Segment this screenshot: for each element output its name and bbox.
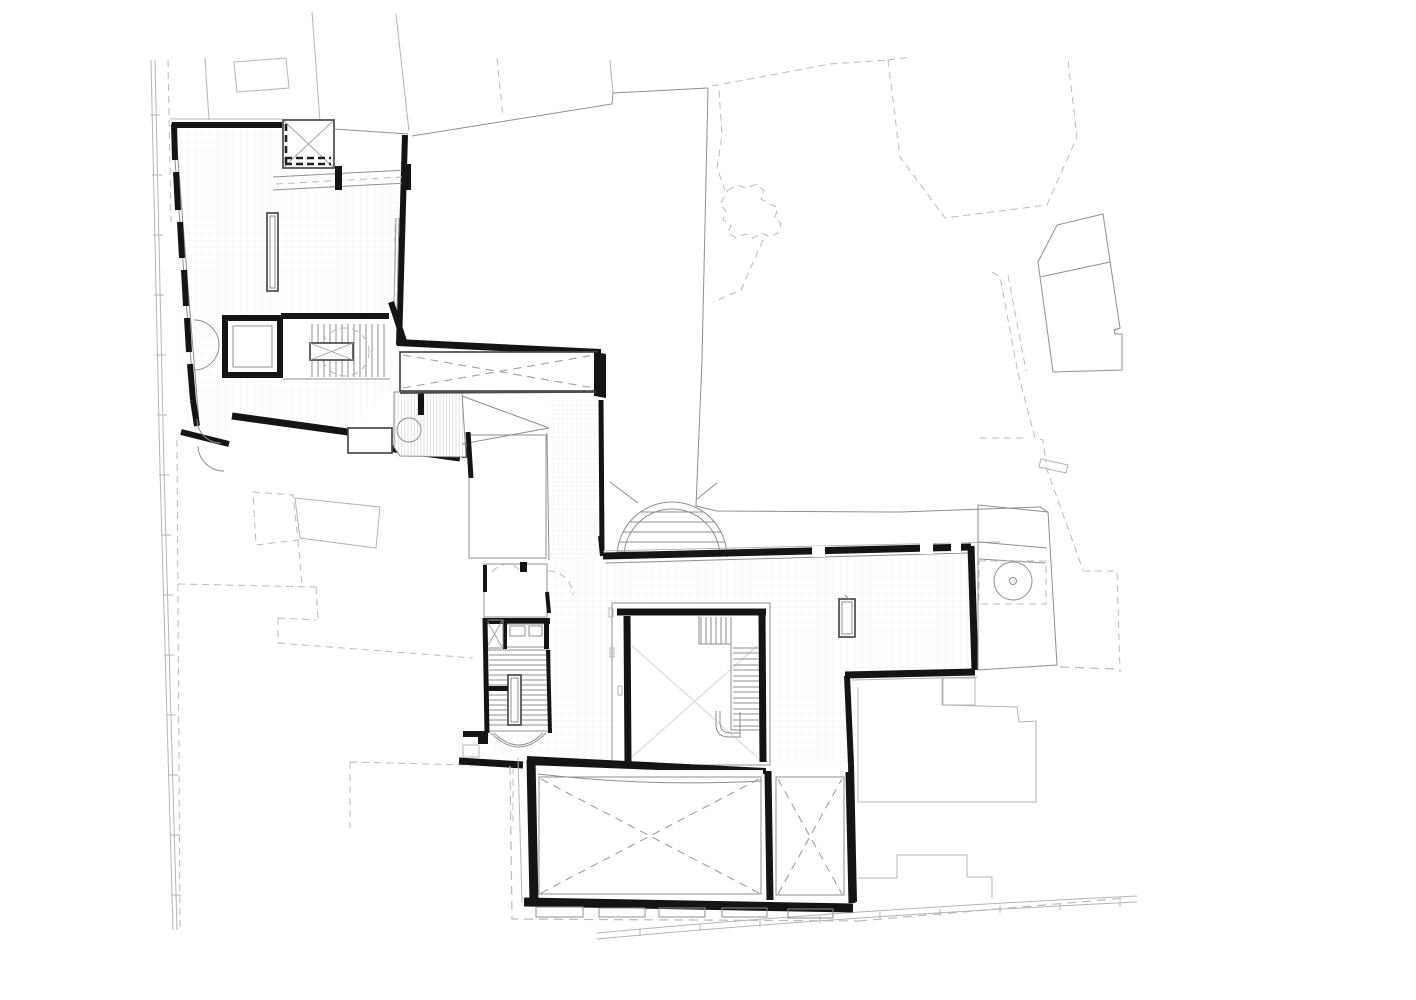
hatched-ramp-room [394, 392, 549, 457]
door-swing [198, 446, 224, 471]
floor-plan-canvas [0, 0, 1416, 1000]
dashed-neighbor-footprint [888, 60, 1077, 218]
adjacent-building-outline [412, 88, 1048, 512]
neighbor-building-east [980, 214, 1122, 672]
bridge-x-void [397, 339, 606, 398]
north-wing-gallery [170, 119, 549, 471]
context-shed [234, 58, 289, 92]
ramp-lines [462, 396, 549, 444]
notched-tower-footprint [712, 60, 888, 302]
elevator-core [220, 313, 285, 380]
site-boundary-southwest [177, 440, 513, 930]
dashed-neighbor-footprint-edge [888, 57, 912, 60]
window-gap [920, 543, 933, 554]
east-terrace [978, 505, 1057, 670]
window-gap [951, 542, 961, 553]
wing-stair [281, 302, 404, 379]
skylight-x-void [283, 120, 334, 168]
context-line [312, 12, 320, 122]
switchback-stair [487, 650, 550, 731]
wc-kitchenette [486, 618, 550, 649]
annex-room [348, 428, 392, 453]
context-southeast [852, 667, 1126, 921]
central-corridor [547, 396, 604, 560]
context-line [205, 58, 209, 120]
floor-plan-drawing [0, 0, 1416, 1000]
round-table [994, 562, 1032, 600]
context-line [610, 60, 613, 93]
context-line [396, 14, 409, 131]
south-block-voids [510, 756, 858, 921]
window-gap [812, 546, 825, 557]
atrium-void [609, 603, 770, 765]
context-dashed [497, 58, 503, 117]
